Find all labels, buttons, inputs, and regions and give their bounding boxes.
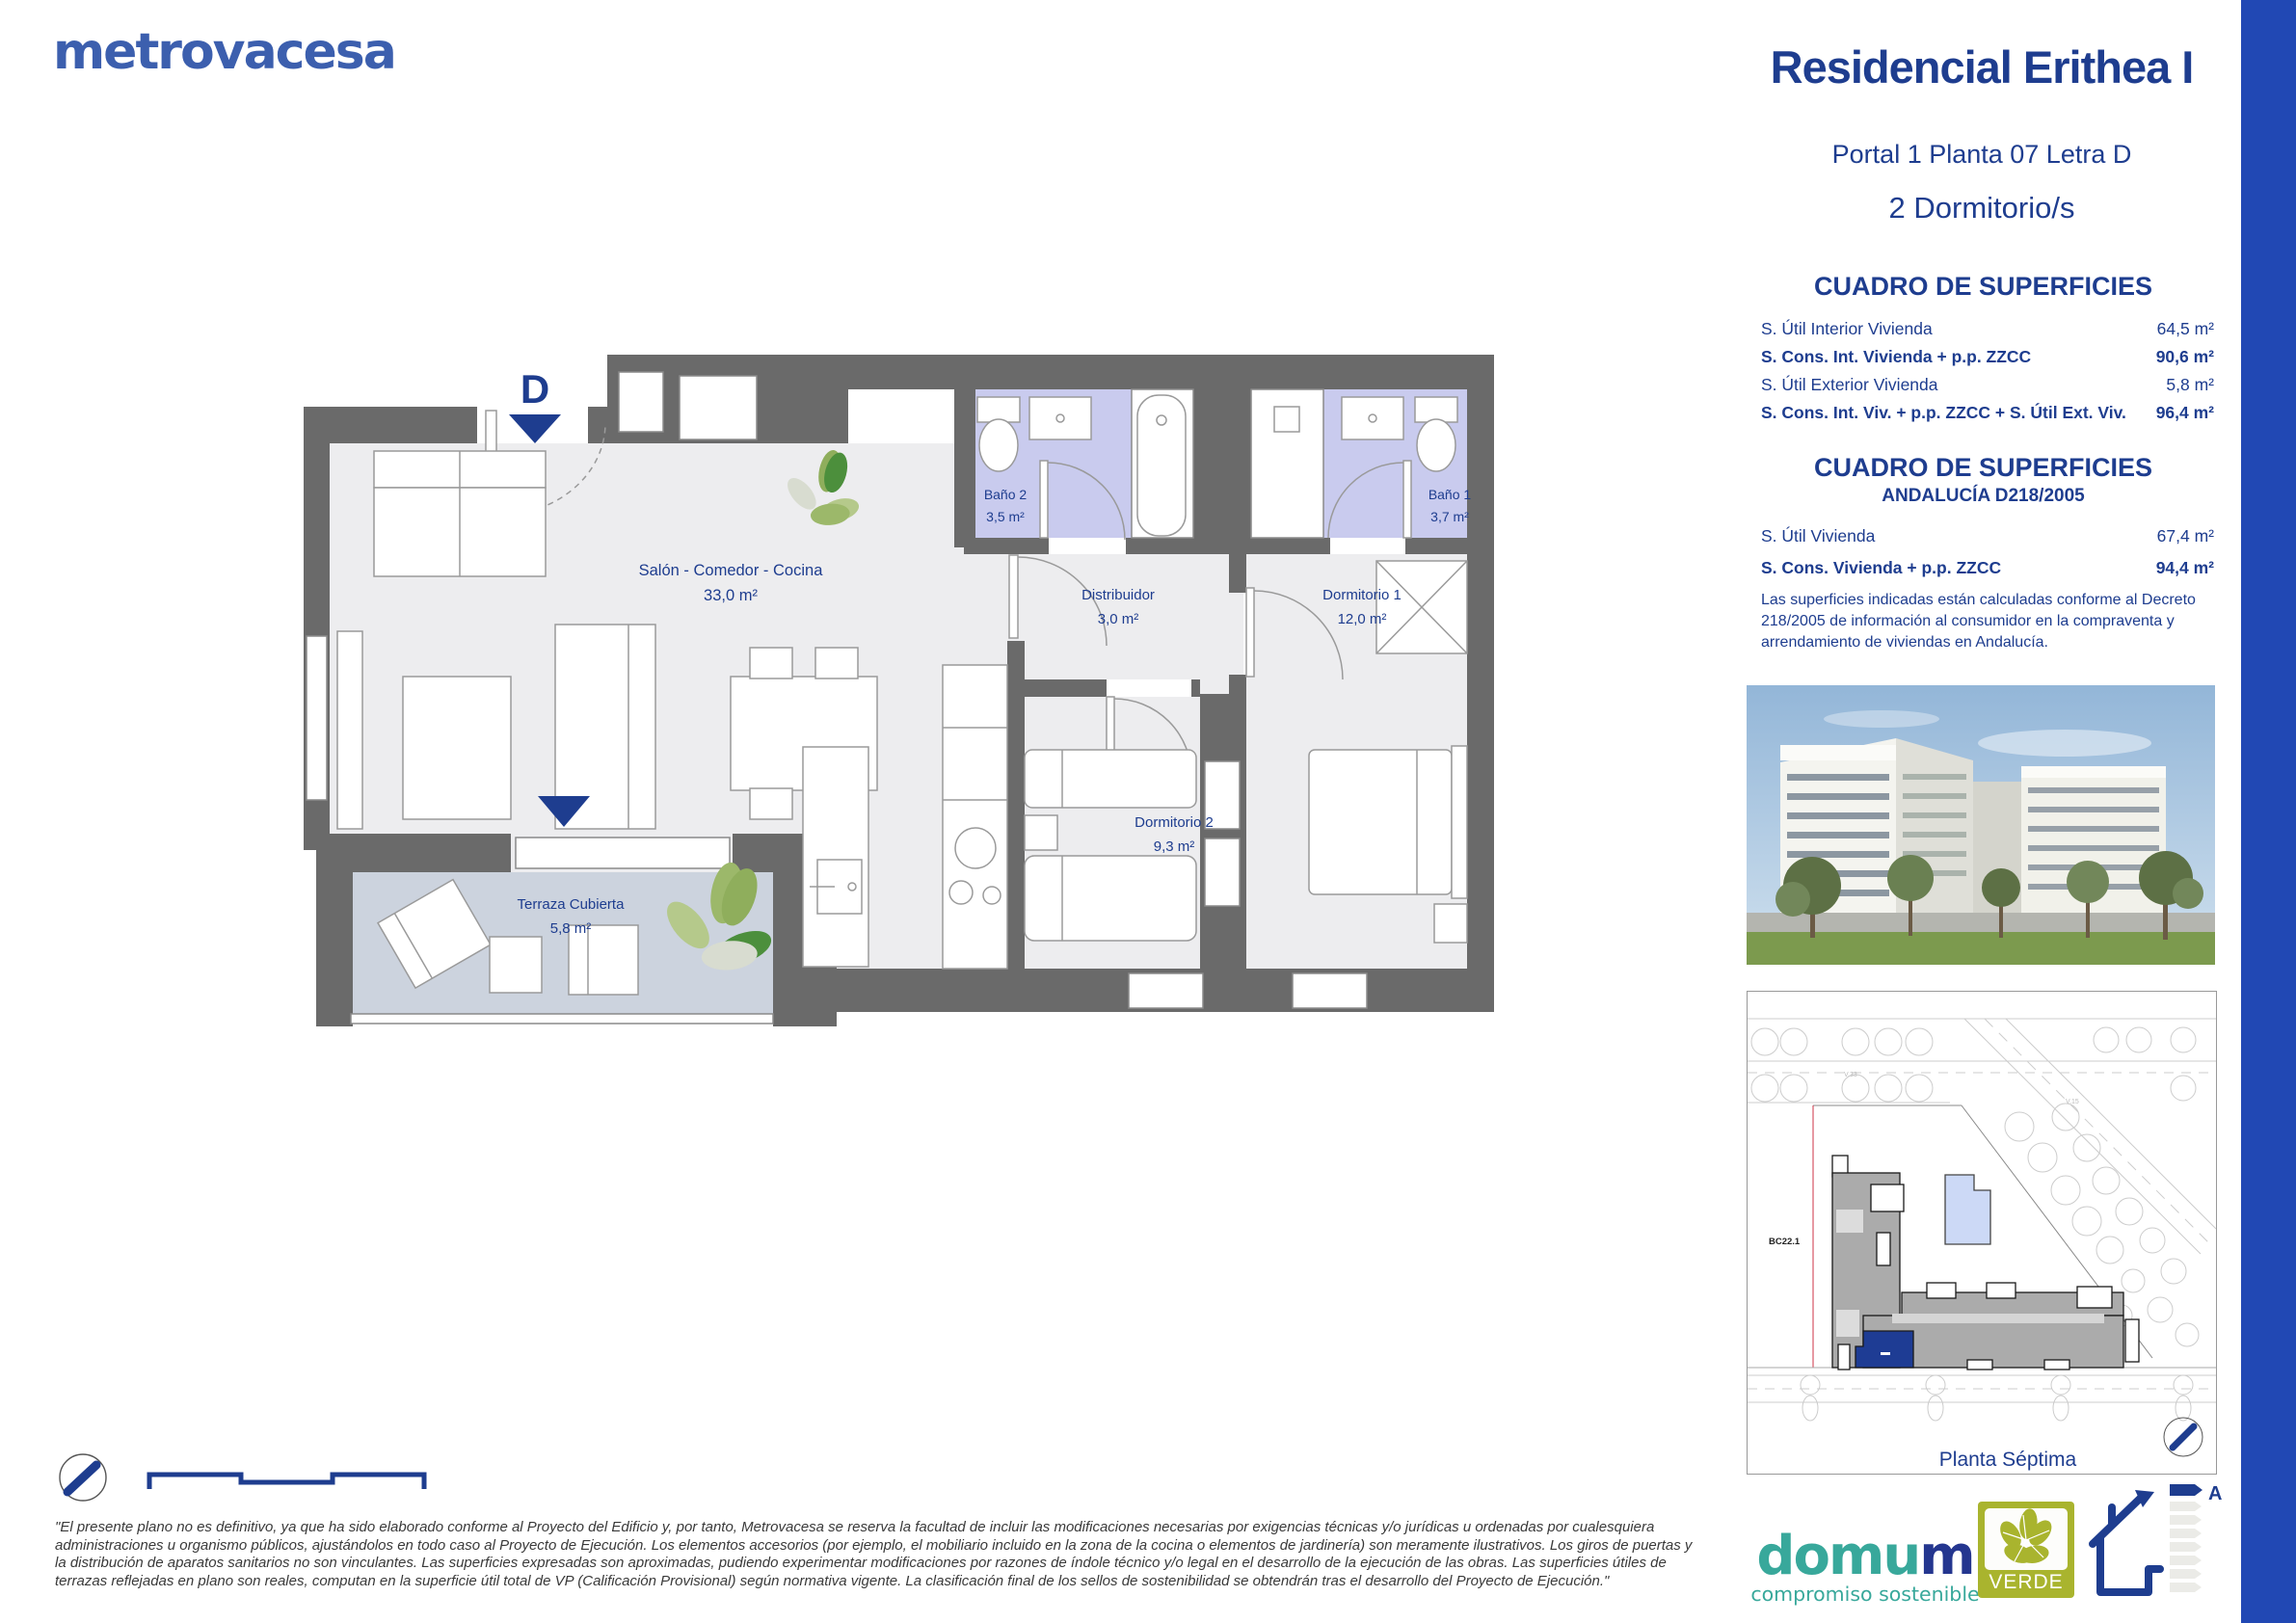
energy-arrow-a [2170,1484,2203,1496]
room-label-terraza: Terraza Cubierta [518,896,626,913]
surfaces-table-title: CUADRO DE SUPERFICIES [1735,272,2231,302]
row-label: S. Útil Vivienda [1761,526,1875,546]
row-label: S. Cons. Vivienda + p.p. ZZCC [1761,558,2001,578]
verde-logo: VERDE [1978,1502,2074,1598]
row-value: 94,4 m² [2156,558,2214,578]
room-label-dorm2: Dormitorio 2 [1135,814,1214,831]
surfaces-table: CUADRO DE SUPERFICIES S. Útil Interior V… [1735,272,2231,427]
scale-bar [135,1457,443,1502]
header: Residencial Erithea I Portal 1 Planta 07… [1731,0,2232,226]
energy-rating-letter: A [2208,1483,2222,1504]
row-value: 64,5 m² [2157,319,2214,339]
room-label-bano2: Baño 2 [984,487,1028,502]
page-title: Residencial Erithea I [1731,40,2232,93]
energy-house-outline [2093,1498,2160,1592]
energy-bars [2170,1502,2202,1592]
right-blue-bar [2241,0,2296,1623]
road-label: V.15 [2066,1099,2079,1105]
andalucia-table-title: CUADRO DE SUPERFICIES [1735,453,2231,483]
andalucia-note: Las superficies indicadas están calculad… [1735,584,2231,653]
energy-rating-icon: A [2087,1477,2222,1604]
domum-logo: domum compromiso sostenible [1749,1530,1981,1606]
road-label: V.33 [1844,1072,1857,1078]
unit-letter: D [521,366,549,412]
andalucia-table: CUADRO DE SUPERFICIES ANDALUCÍA D218/200… [1735,453,2231,653]
room-label-dorm1: Dormitorio 1 [1322,587,1402,603]
row-value: 67,4 m² [2157,526,2214,546]
room-area-dorm1: 12,0 m² [1338,611,1387,627]
table-row: S. Útil Exterior Vivienda 5,8 m² [1735,371,2231,399]
room-label-salon: Salón - Comedor - Cocina [639,562,824,579]
siteplan-drawing: BC22.1 V.33 V.15 Planta Séptima [1748,992,2216,1474]
room-area-salon: 33,0 m² [704,587,758,604]
row-value: 5,8 m² [2166,375,2214,395]
legal-disclaimer: "El presente plano no es definitivo, ya … [55,1519,1707,1590]
siteplan-caption: Planta Séptima [1939,1449,2077,1471]
verde-leaf-icon [1978,1502,2074,1575]
siteplan-block-label: BC22.1 [1769,1237,1801,1247]
table-row: S. Útil Vivienda 67,4 m² [1735,520,2231,552]
room-area-dorm2: 9,3 m² [1154,838,1195,855]
table-row: S. Útil Interior Vivienda 64,5 m² [1735,315,2231,343]
andalucia-table-subtitle: ANDALUCÍA D218/2005 [1735,486,2231,507]
table-row: S. Cons. Vivienda + p.p. ZZCC 94,4 m² [1735,552,2231,584]
room-area-bano2: 3,5 m² [986,509,1025,524]
row-value: 90,6 m² [2156,347,2214,367]
row-label: S. Cons. Int. Viv. + p.p. ZZCC + S. Útil… [1761,403,2126,423]
verde-label: VERDE [1978,1571,2074,1594]
table-row: S. Cons. Int. Vivienda + p.p. ZZCC 90,6 … [1735,343,2231,371]
room-area-distribuidor: 3,0 m² [1098,611,1139,627]
siteplan-frame: BC22.1 V.33 V.15 Planta Séptima [1747,991,2217,1475]
floorplan-drawing: D Salón - Comedor - Cocina 33,0 m² Baño … [289,347,1504,1031]
unit-reference: Portal 1 Planta 07 Letra D [1731,140,2232,170]
row-label: S. Útil Interior Vivienda [1761,319,1933,339]
north-compass-icon [46,1442,120,1513]
row-label: S. Cons. Int. Vivienda + p.p. ZZCC [1761,347,2031,367]
room-area-terraza: 5,8 m² [550,920,592,937]
siteplan-compass-icon [2164,1418,2203,1456]
room-label-distribuidor: Distribuidor [1081,587,1155,603]
siteplan-buildings [1832,1156,2139,1370]
domum-logo-text: domu [1756,1525,1919,1587]
entrance-arrow-icon [509,414,561,443]
row-value: 96,4 m² [2156,403,2214,423]
building-render-image [1747,684,2215,966]
table-row: S. Cons. Int. Viv. + p.p. ZZCC + S. Útil… [1735,399,2231,427]
bedroom-count: 2 Dormitorio/s [1731,191,2232,226]
room-area-bano1: 3,7 m² [1430,509,1469,524]
metrovacesa-logo: metrovacesa [53,23,395,81]
domum-tagline: compromiso sostenible [1749,1583,1981,1606]
row-label: S. Útil Exterior Vivienda [1761,375,1938,395]
room-label-bano1: Baño 1 [1428,487,1472,502]
domum-logo-m: m [1919,1525,1973,1587]
